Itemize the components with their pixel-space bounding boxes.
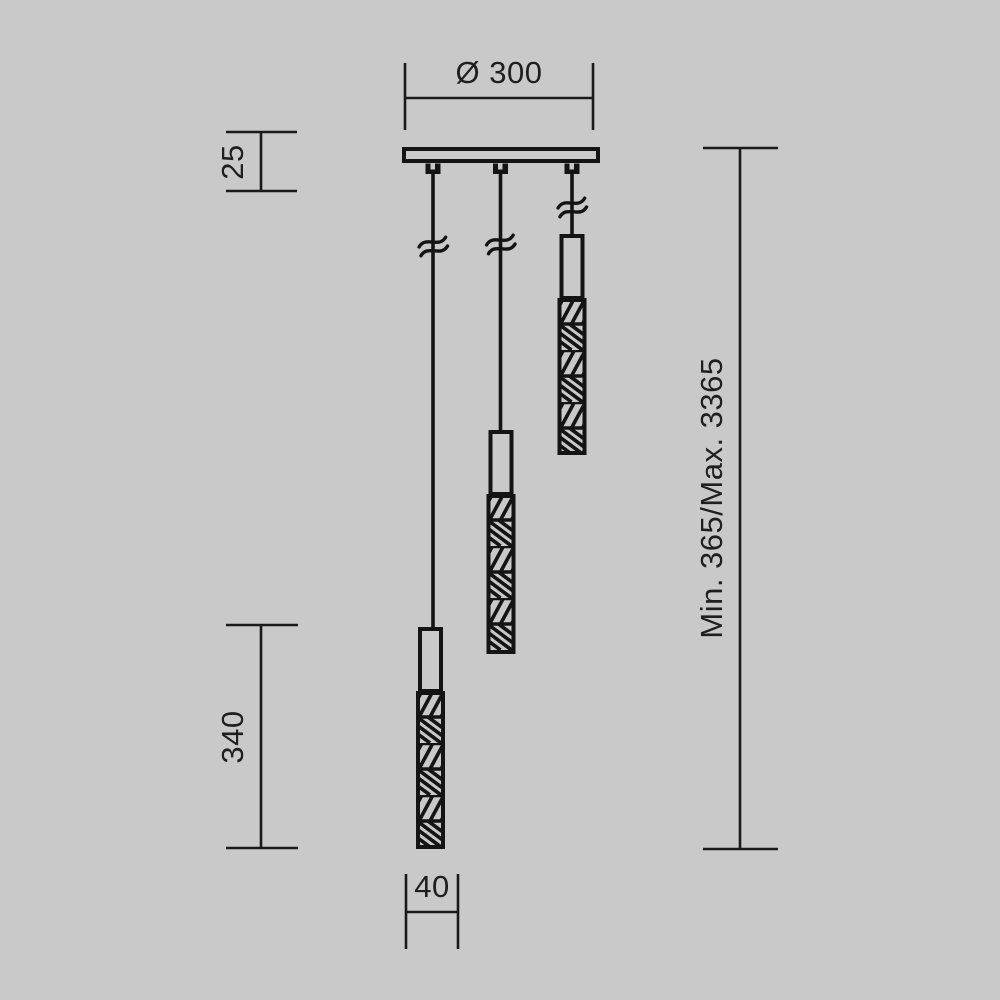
dim-label-shade-length: 340 — [215, 710, 250, 763]
pendant-textured-shade — [560, 300, 585, 453]
cable-connector — [426, 164, 441, 175]
cable-connectors — [426, 164, 580, 175]
pendant-stem — [420, 629, 441, 691]
dim-canopy-thickness: 25 — [215, 132, 297, 191]
pendant-lamp-drawing: Ø 300 25 — [0, 0, 1000, 1000]
dim-suspension-range: Min. 365/Max. 3365 — [694, 148, 778, 849]
dim-canopy-diameter: Ø 300 — [405, 55, 593, 130]
dim-shade-length: 340 — [215, 625, 298, 848]
dim-label-suspension-range: Min. 365/Max. 3365 — [694, 357, 729, 638]
pendant-middle — [489, 432, 514, 652]
dim-label-canopy-thickness: 25 — [215, 144, 250, 179]
pendant-textured-shade — [418, 693, 443, 847]
dim-label-shade-diameter: 40 — [414, 869, 449, 904]
pendant-textured-shade — [489, 496, 514, 652]
pendant-right — [560, 236, 585, 453]
drawing-canvas: Ø 300 25 — [0, 0, 1000, 1000]
dim-shade-diameter: 40 — [406, 869, 458, 949]
cable-connector — [565, 164, 580, 175]
dim-label-canopy-diameter: Ø 300 — [456, 55, 543, 90]
pendant-stem — [491, 432, 512, 494]
pendant-left — [418, 629, 443, 847]
cable-connector — [493, 164, 508, 175]
ceiling-canopy — [404, 149, 598, 161]
pendant-stem — [562, 236, 583, 298]
